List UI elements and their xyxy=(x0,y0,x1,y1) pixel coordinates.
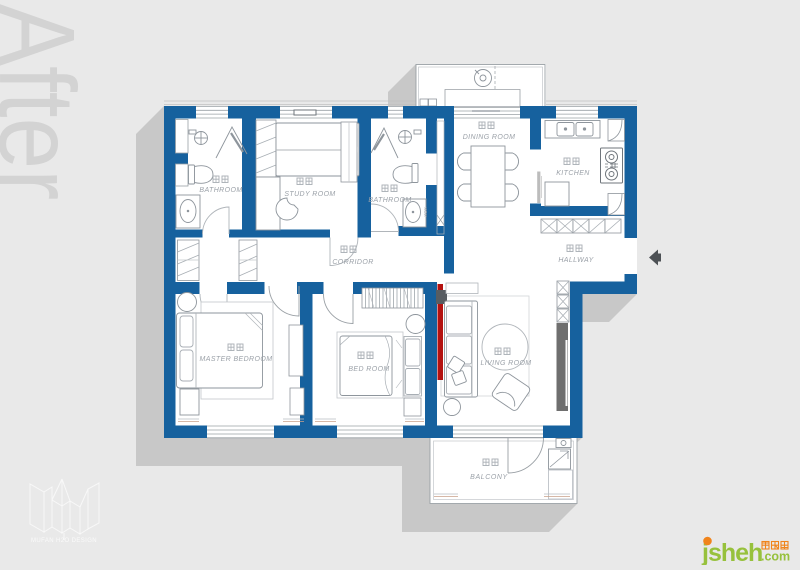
svg-text:DINING ROOM: DINING ROOM xyxy=(463,134,516,141)
svg-text:After: After xyxy=(0,4,97,200)
svg-text:.com: .com xyxy=(761,550,790,564)
svg-text:MUFAN H2O DESIGN: MUFAN H2O DESIGN xyxy=(31,538,97,544)
svg-text:BATHROOM: BATHROOM xyxy=(368,197,411,204)
svg-text:STUDY ROOM: STUDY ROOM xyxy=(284,191,335,198)
svg-text:XOX: XOX xyxy=(423,207,428,217)
svg-text:BED ROOM: BED ROOM xyxy=(348,366,389,373)
svg-text:MASTER BEDROOM: MASTER BEDROOM xyxy=(200,356,273,363)
svg-text:CORRIDOR: CORRIDOR xyxy=(332,259,373,266)
svg-text:KITCHEN: KITCHEN xyxy=(556,170,590,177)
svg-text:HALLWAY: HALLWAY xyxy=(558,257,594,264)
svg-text:LIVING ROOM: LIVING ROOM xyxy=(480,360,531,367)
svg-text:BALCONY: BALCONY xyxy=(470,474,508,481)
svg-text:BATHROOM: BATHROOM xyxy=(199,187,242,194)
